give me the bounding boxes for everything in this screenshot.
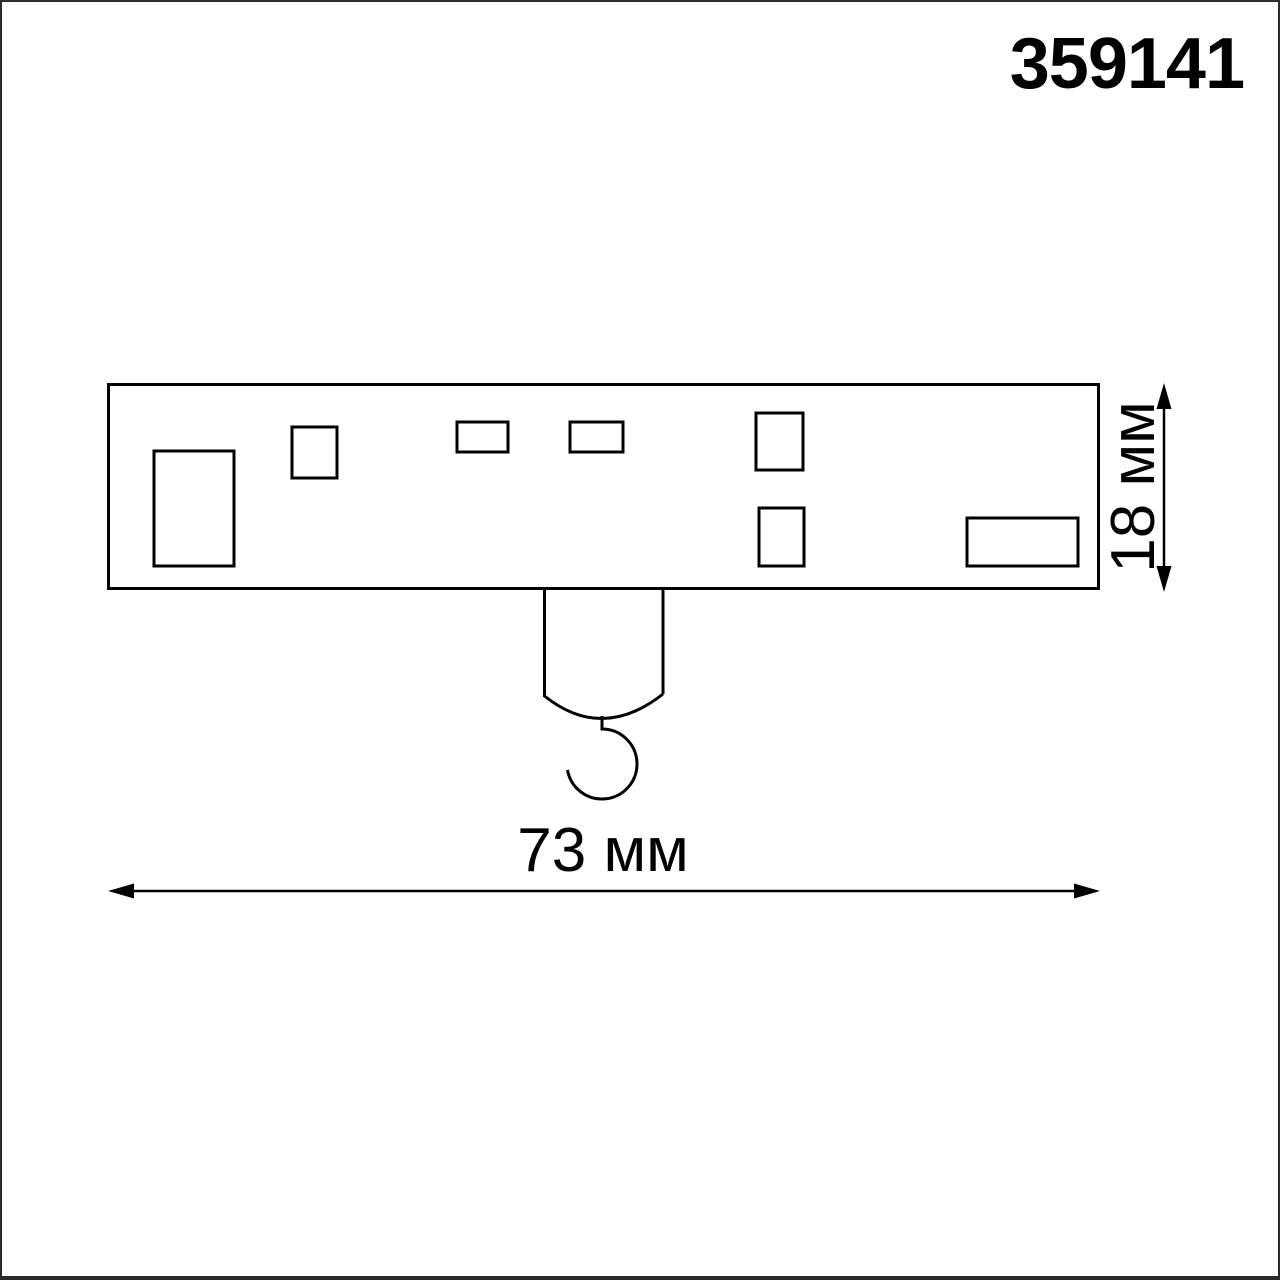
cutout-slot-center-2 xyxy=(570,422,623,452)
cutout-slot-small-vertical xyxy=(292,427,337,478)
width-dimension-arrow xyxy=(108,884,1100,899)
cutout-slot-center-1 xyxy=(457,422,508,452)
cutout-slot-right-upper xyxy=(756,413,803,470)
suspension-hook xyxy=(568,716,637,799)
adapter-stem-bottom-arc xyxy=(545,694,664,719)
technical-drawing xyxy=(0,0,1280,1280)
height-dimension-label: 18 мм xyxy=(1103,387,1165,587)
cutout-slot-large-right xyxy=(967,518,1078,566)
width-arrowhead-left xyxy=(108,884,134,899)
adapter-body-outline xyxy=(109,385,1099,589)
cutout-slot-large-left xyxy=(154,451,234,566)
width-dimension-label: 73 мм xyxy=(453,820,753,882)
width-arrowhead-right xyxy=(1074,884,1100,899)
cutout-slot-right-lower xyxy=(759,508,804,566)
